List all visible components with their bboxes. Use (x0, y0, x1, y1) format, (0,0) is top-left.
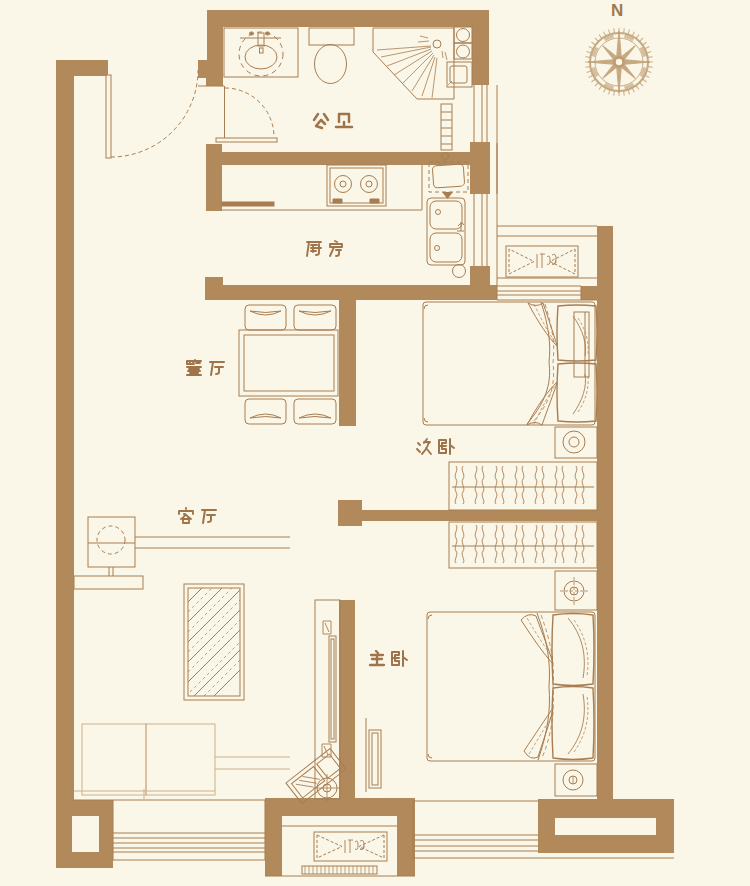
svg-text:N: N (611, 1, 623, 20)
